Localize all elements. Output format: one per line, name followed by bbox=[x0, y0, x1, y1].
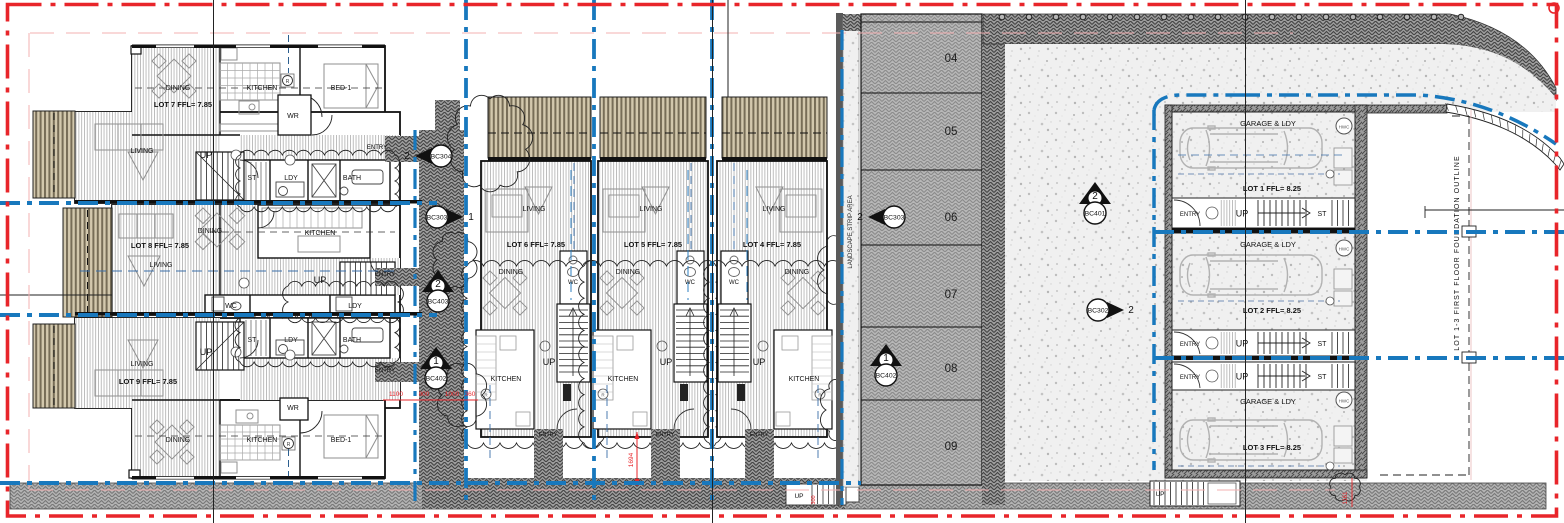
svg-text:LDY: LDY bbox=[284, 337, 298, 344]
svg-text:04: 04 bbox=[945, 53, 958, 65]
svg-text:KITCHEN: KITCHEN bbox=[247, 437, 278, 444]
svg-text:BC402: BC402 bbox=[426, 376, 447, 383]
svg-text:UP: UP bbox=[543, 357, 556, 367]
svg-text:ENTRY: ENTRY bbox=[375, 272, 395, 278]
svg-text:ENTRY: ENTRY bbox=[367, 145, 387, 151]
svg-text:WR: WR bbox=[287, 405, 299, 412]
svg-text:UP: UP bbox=[1155, 491, 1164, 498]
svg-text:UP: UP bbox=[1236, 339, 1249, 349]
svg-text:BED-1: BED-1 bbox=[331, 85, 352, 92]
svg-text:1000: 1000 bbox=[445, 391, 460, 398]
svg-text:WR: WR bbox=[287, 113, 299, 120]
svg-text:HWC: HWC bbox=[1339, 125, 1350, 130]
svg-text:1694: 1694 bbox=[628, 452, 635, 467]
svg-text:300: 300 bbox=[811, 495, 817, 504]
svg-text:UP: UP bbox=[314, 275, 327, 285]
svg-text:UP: UP bbox=[1236, 372, 1249, 382]
svg-text:LIVING: LIVING bbox=[640, 206, 663, 213]
svg-text:BED-1: BED-1 bbox=[331, 437, 352, 444]
svg-text:UP: UP bbox=[200, 150, 213, 160]
svg-text:LDY: LDY bbox=[284, 175, 298, 182]
svg-text:LOT 4 FFL= 7.85: LOT 4 FFL= 7.85 bbox=[743, 240, 801, 249]
svg-text:LIVING: LIVING bbox=[523, 206, 546, 213]
svg-text:09: 09 bbox=[945, 441, 958, 453]
svg-text:LOT 2 FFL= 8.25: LOT 2 FFL= 8.25 bbox=[1243, 306, 1301, 315]
svg-text:UP: UP bbox=[200, 347, 213, 357]
svg-text:DINING: DINING bbox=[166, 437, 191, 444]
svg-text:KITCHEN: KITCHEN bbox=[491, 376, 522, 383]
svg-text:ST: ST bbox=[1318, 211, 1328, 218]
svg-text:1: 1 bbox=[433, 356, 439, 367]
svg-text:WC: WC bbox=[729, 280, 740, 286]
svg-text:HWC: HWC bbox=[1339, 247, 1350, 252]
svg-text:BC303: BC303 bbox=[884, 215, 905, 222]
svg-text:LOT 9 FFL= 7.85: LOT 9 FFL= 7.85 bbox=[119, 377, 177, 386]
svg-text:LOT 8 FFL= 7.85: LOT 8 FFL= 7.85 bbox=[131, 241, 189, 250]
svg-text:WC: WC bbox=[568, 280, 579, 286]
svg-text:LOT 3 FFL= 8.25: LOT 3 FFL= 8.25 bbox=[1243, 443, 1301, 452]
svg-text:1100: 1100 bbox=[389, 391, 403, 398]
svg-text:DINING: DINING bbox=[166, 85, 191, 92]
svg-text:BC402: BC402 bbox=[876, 373, 897, 380]
svg-text:LOT 1-3 FIRST FLOOR FOUNDATION: LOT 1-3 FIRST FLOOR FOUNDATION OUTLINE bbox=[1454, 155, 1461, 350]
svg-text:ENTRY: ENTRY bbox=[539, 432, 558, 438]
svg-text:LIVING: LIVING bbox=[763, 206, 786, 213]
svg-text:LIVING: LIVING bbox=[150, 262, 173, 269]
svg-text:LOT 7 FFL= 7.85: LOT 7 FFL= 7.85 bbox=[154, 100, 212, 109]
svg-text:GARAGE & LDY: GARAGE & LDY bbox=[1240, 397, 1296, 406]
svg-text:800: 800 bbox=[419, 391, 430, 398]
svg-text:07: 07 bbox=[945, 289, 958, 301]
svg-text:ENTRY: ENTRY bbox=[1180, 342, 1200, 348]
svg-text:1: 1 bbox=[468, 212, 474, 223]
svg-text:ENTRY: ENTRY bbox=[1180, 375, 1200, 381]
svg-text:DINING: DINING bbox=[785, 269, 810, 276]
svg-text:UP: UP bbox=[1236, 209, 1249, 219]
svg-text:BC302: BC302 bbox=[1088, 308, 1109, 315]
svg-text:05: 05 bbox=[945, 126, 958, 138]
svg-text:ENTRY: ENTRY bbox=[750, 432, 769, 438]
svg-text:BC403: BC403 bbox=[428, 299, 449, 306]
svg-text:08: 08 bbox=[945, 363, 958, 375]
svg-text:ENTRY: ENTRY bbox=[1180, 212, 1200, 218]
svg-text:KITCHEN: KITCHEN bbox=[247, 85, 278, 92]
svg-text:DINING: DINING bbox=[499, 269, 524, 276]
svg-text:1: 1 bbox=[883, 353, 889, 364]
svg-text:BC401: BC401 bbox=[1085, 211, 1106, 218]
svg-text:WC: WC bbox=[685, 280, 696, 286]
svg-text:UP: UP bbox=[794, 493, 803, 500]
svg-text:2: 2 bbox=[1128, 305, 1134, 316]
svg-text:LOT 6 FFL= 7.85: LOT 6 FFL= 7.85 bbox=[507, 240, 565, 249]
svg-text:ENTRY: ENTRY bbox=[375, 368, 395, 374]
svg-text:DINING: DINING bbox=[616, 269, 641, 276]
svg-text:R: R bbox=[286, 79, 290, 85]
svg-text:LIVING: LIVING bbox=[131, 361, 154, 368]
svg-text:UP: UP bbox=[753, 357, 766, 367]
svg-text:KITCHEN: KITCHEN bbox=[305, 230, 336, 237]
svg-text:LDY: LDY bbox=[348, 303, 362, 310]
svg-text:360: 360 bbox=[465, 391, 476, 398]
svg-text:R: R bbox=[287, 442, 291, 448]
svg-text:2: 2 bbox=[1092, 191, 1098, 202]
svg-text:1161: 1161 bbox=[1343, 491, 1349, 505]
svg-text:BC304: BC304 bbox=[431, 154, 452, 161]
svg-text:DINING: DINING bbox=[198, 228, 223, 235]
svg-text:KITCHEN: KITCHEN bbox=[789, 376, 820, 383]
svg-text:2: 2 bbox=[404, 151, 410, 162]
svg-text:2: 2 bbox=[435, 279, 441, 290]
svg-text:KITCHEN: KITCHEN bbox=[608, 376, 639, 383]
svg-text:2: 2 bbox=[857, 212, 863, 223]
svg-text:ST: ST bbox=[1318, 341, 1328, 348]
svg-text:HWC: HWC bbox=[1339, 399, 1350, 404]
svg-text:ST: ST bbox=[1318, 374, 1328, 381]
svg-text:GARAGE & LDY: GARAGE & LDY bbox=[1240, 240, 1296, 249]
svg-text:BC303: BC303 bbox=[427, 215, 448, 222]
svg-text:LOT 1 FFL= 8.25: LOT 1 FFL= 8.25 bbox=[1243, 184, 1301, 193]
svg-text:LIVING: LIVING bbox=[131, 148, 154, 155]
svg-text:ENTRY: ENTRY bbox=[656, 432, 675, 438]
svg-text:GARAGE & LDY: GARAGE & LDY bbox=[1240, 119, 1296, 128]
svg-text:UP: UP bbox=[660, 357, 673, 367]
svg-text:06: 06 bbox=[945, 212, 958, 224]
svg-text:LOT 5 FFL= 7.85: LOT 5 FFL= 7.85 bbox=[624, 240, 682, 249]
svg-text:LANDSCAPE STRIP AREA: LANDSCAPE STRIP AREA bbox=[848, 195, 854, 268]
